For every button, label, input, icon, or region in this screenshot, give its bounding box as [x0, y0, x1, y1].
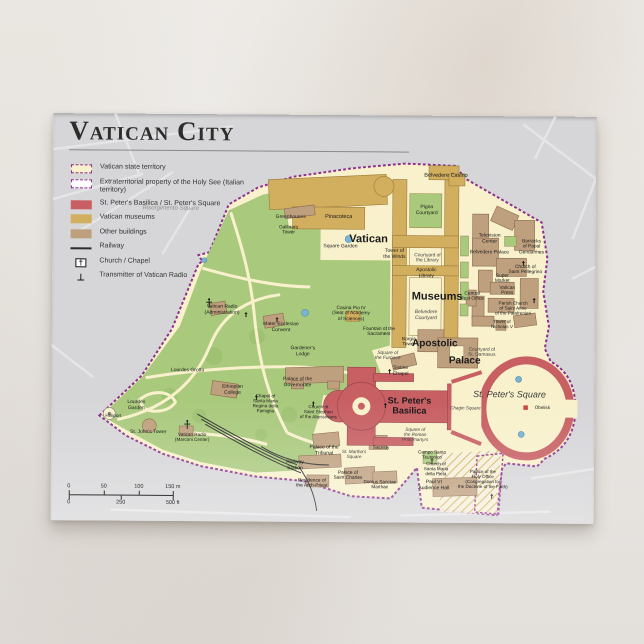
scale-m-100: 100: [134, 484, 143, 490]
legend-swatch: [71, 214, 92, 223]
legend-item: Transmitter of Vatican Radio: [70, 271, 248, 282]
scale-ft-500: 500 ft: [166, 500, 180, 506]
legend-swatch: [71, 200, 92, 209]
library-courtyard: [409, 248, 441, 266]
fountain-south: [518, 431, 524, 437]
obelisk-marker: [523, 405, 528, 410]
map-title: Vatican City: [69, 115, 234, 147]
vatican-map-graphic: ††† ††† ††† † Vatican City: [51, 113, 597, 524]
legend-item: Vatican state territory: [71, 163, 249, 174]
square-east-entrance: [563, 400, 577, 418]
damasus-courtyard: [450, 346, 464, 360]
scale-bar: 0 50 100 150 m 0 250 500 ft: [69, 485, 174, 512]
legend-swatch: [71, 229, 92, 238]
legend-item: Extraterritorial property of the Holy Se…: [71, 178, 249, 196]
heliport-pad: [103, 407, 115, 419]
pigna-courtyard: [410, 194, 442, 228]
legend-swatch: [70, 272, 91, 281]
svg-text:†: †: [533, 297, 536, 304]
svg-text:†: †: [522, 260, 525, 267]
legend-item: Church / Chapel: [70, 257, 248, 268]
legend-label: Church / Chapel: [99, 257, 150, 266]
legend-label: Other buildings: [100, 228, 147, 237]
legend-item: Other buildings: [71, 228, 249, 239]
legend-swatch: [70, 258, 91, 267]
legend-item: Railway: [70, 242, 248, 253]
scale-m-50: 50: [101, 483, 107, 489]
scale-m-0: 0: [67, 483, 70, 489]
scale-ft-250: 250: [116, 500, 125, 506]
legend-label: Vatican museums: [100, 213, 155, 222]
legend-swatch: [71, 179, 92, 188]
scale-ft-0: 0: [67, 499, 70, 505]
marble-background: ††† ††† ††† † Vatican City: [0, 0, 644, 644]
legend-swatch: [71, 164, 92, 173]
svg-text:†: †: [490, 493, 493, 500]
legend: Vatican state territory Extraterritorial…: [70, 163, 249, 287]
scale-m-150: 150 m: [165, 484, 180, 490]
belvedere-courtyard: [409, 278, 441, 336]
legend-label: Transmitter of Vatican Radio: [99, 271, 187, 280]
fountain-north: [516, 376, 522, 382]
legend-item: Vatican museums: [71, 213, 249, 224]
svg-text:†: †: [312, 401, 315, 408]
legend-swatch: [70, 243, 91, 252]
legend-label: Railway: [99, 242, 124, 250]
svg-text:†: †: [384, 402, 387, 409]
svg-text:†: †: [244, 311, 247, 318]
svg-text:†: †: [255, 395, 258, 402]
postcard: ††† ††† ††† † Vatican City: [51, 113, 597, 524]
legend-label: Vatican state territory: [100, 163, 166, 172]
legend-item: St. Peter's Basilica / St. Peter's Squar…: [71, 199, 249, 210]
svg-text:†: †: [430, 458, 433, 465]
legend-label: St. Peter's Basilica / St. Peter's Squar…: [100, 199, 221, 208]
svg-text:†: †: [388, 368, 391, 375]
holy-office-area: [432, 450, 503, 514]
svg-text:†: †: [275, 317, 278, 324]
legend-label: Extraterritorial property of the Holy Se…: [100, 178, 249, 196]
